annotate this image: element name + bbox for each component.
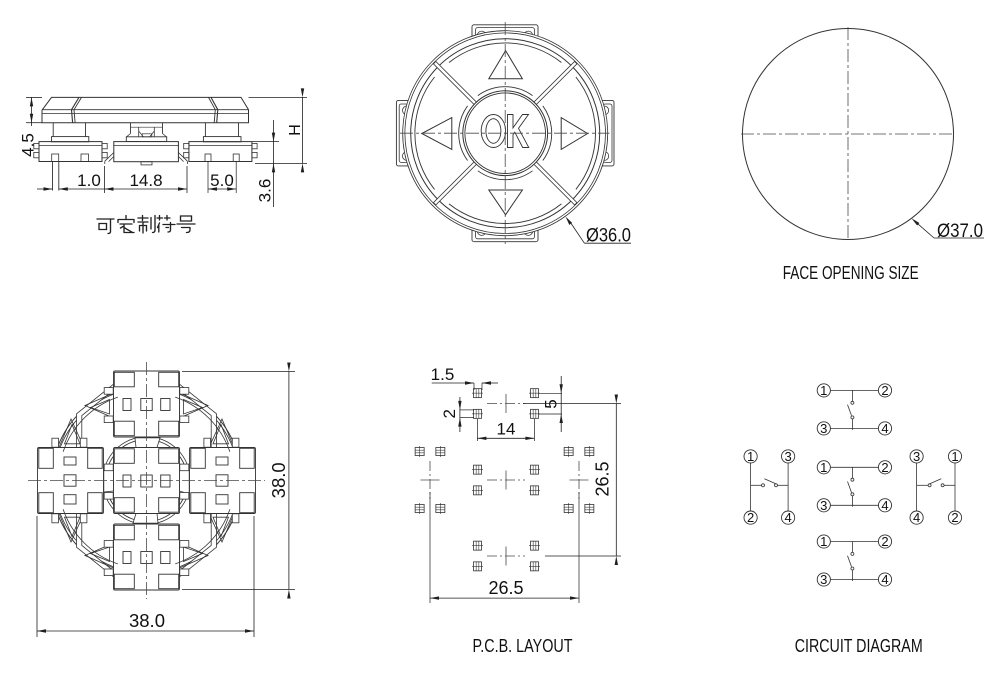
svg-text:4: 4 <box>881 572 888 587</box>
svg-text:2: 2 <box>881 460 888 475</box>
svg-text:3: 3 <box>820 498 827 513</box>
svg-text:1: 1 <box>747 449 754 464</box>
svg-text:26.5: 26.5 <box>488 578 523 598</box>
svg-text:5.0: 5.0 <box>210 171 234 190</box>
svg-text:3: 3 <box>820 572 827 587</box>
svg-text:4: 4 <box>784 510 791 525</box>
svg-text:2: 2 <box>881 534 888 549</box>
svg-text:14: 14 <box>497 420 516 439</box>
svg-text:4.5: 4.5 <box>19 133 38 157</box>
svg-text:1: 1 <box>820 534 827 549</box>
svg-text:2: 2 <box>881 383 888 398</box>
svg-text:38.0: 38.0 <box>129 610 165 631</box>
svg-text:Ø37.0: Ø37.0 <box>937 221 983 242</box>
svg-text:4: 4 <box>881 421 888 436</box>
svg-text:2: 2 <box>440 409 459 418</box>
svg-text:CIRCUIT DIAGRAM: CIRCUIT DIAGRAM <box>795 635 923 656</box>
svg-text:1.0: 1.0 <box>77 171 101 190</box>
svg-text:1: 1 <box>820 383 827 398</box>
svg-text:1.5: 1.5 <box>431 365 455 384</box>
svg-text:Ø36.0: Ø36.0 <box>586 225 631 246</box>
svg-text:2: 2 <box>951 510 958 525</box>
svg-text:38.0: 38.0 <box>268 462 289 498</box>
svg-text:14.8: 14.8 <box>129 171 162 190</box>
svg-text:3: 3 <box>913 449 920 464</box>
svg-text:H: H <box>287 124 304 136</box>
svg-text:P.C.B. LAYOUT: P.C.B. LAYOUT <box>473 635 573 656</box>
svg-text:2: 2 <box>747 510 754 525</box>
svg-text:1: 1 <box>820 460 827 475</box>
svg-text:5: 5 <box>542 399 561 408</box>
svg-text:4: 4 <box>881 498 888 513</box>
svg-text:FACE OPENING SIZE: FACE OPENING SIZE <box>783 262 919 283</box>
svg-text:3.6: 3.6 <box>256 179 275 203</box>
svg-text:26.5: 26.5 <box>593 461 613 496</box>
svg-text:1: 1 <box>951 449 958 464</box>
svg-text:4: 4 <box>913 510 920 525</box>
svg-text:3: 3 <box>784 449 791 464</box>
svg-text:3: 3 <box>820 421 827 436</box>
